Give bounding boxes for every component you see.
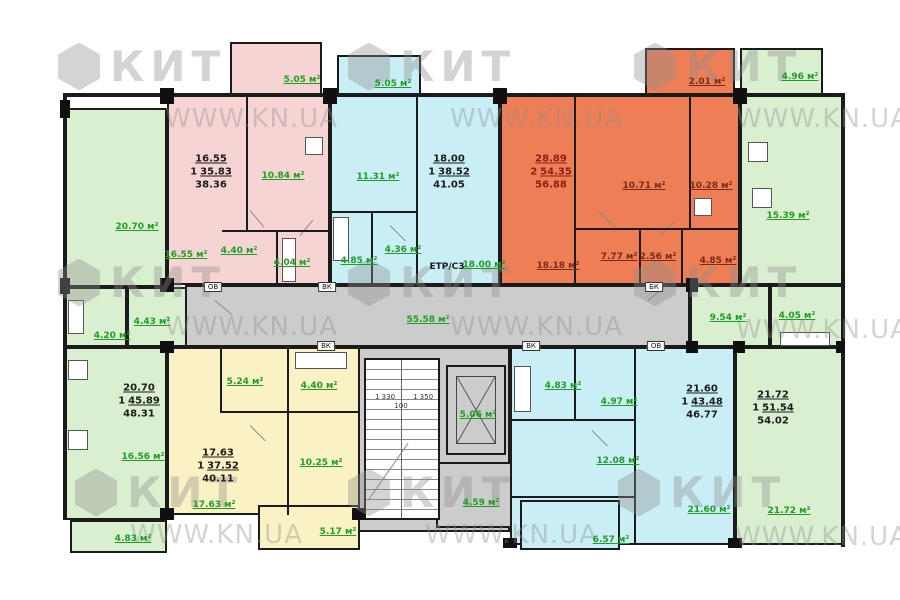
- bathtub-icon: [295, 352, 347, 369]
- wall-pier: [503, 538, 517, 548]
- label-cyan-top-balcony-area: 5.05 м²: [375, 79, 412, 89]
- label-orange-bedroom-area: 10.71 м²: [623, 181, 666, 191]
- label-pink-bath-area: 4.04 м²: [274, 258, 311, 268]
- label-pink-hall-area: 4.40 м²: [221, 246, 258, 256]
- partition: [287, 411, 289, 515]
- label-etr: ЕТР/С3: [429, 262, 464, 272]
- stair-dim-left: 1 330: [375, 393, 395, 401]
- label-right-hall-area: 9.54 м²: [710, 313, 747, 323]
- wall-pier: [160, 278, 174, 292]
- bathtub-icon: [333, 217, 349, 261]
- wall-top: [63, 93, 845, 97]
- apt-summary-pink: 16.55 135.83 38.36: [190, 153, 232, 192]
- wall-left: [63, 93, 67, 520]
- partition: [574, 228, 740, 230]
- room-cyan-top-balcony: [337, 55, 421, 95]
- stove-icon: [748, 142, 768, 162]
- label-cyan-bottom-balcony-area: 6.57 м²: [593, 535, 630, 545]
- label-right-kitchen-area: 15.39 м²: [767, 211, 810, 221]
- summary-living-total: 43.48: [691, 397, 723, 408]
- summary-mid: 254.35: [530, 166, 572, 179]
- partition: [220, 347, 222, 413]
- summary-living: 18.00: [428, 153, 470, 166]
- label-right-living-area: 21.72 м²: [768, 506, 811, 516]
- summary-mid: 151.54: [752, 402, 794, 415]
- summary-living: 20.70: [118, 382, 160, 395]
- summary-rooms: 1: [681, 397, 688, 408]
- summary-total: 40.11: [197, 473, 239, 486]
- partition: [510, 496, 636, 498]
- partition: [371, 211, 373, 285]
- room-pink-balcony: [230, 42, 322, 95]
- kit-logo-text: КИТ: [110, 42, 226, 91]
- label-elevator-area: 5.06 м²: [460, 410, 497, 420]
- label-cyan-bottom-living-area: 21.60 м²: [688, 505, 731, 515]
- wall-pier: [60, 278, 70, 294]
- bathtub-icon: [68, 300, 84, 334]
- room-utility: [436, 462, 520, 528]
- label-cyan-bottom-hall-area: 4.97 м²: [601, 397, 638, 407]
- partition: [510, 419, 636, 421]
- summary-living: 17.63: [197, 447, 239, 460]
- summary-rooms: 1: [428, 167, 435, 178]
- summary-living: 21.72: [752, 389, 794, 402]
- wall-pier: [323, 88, 337, 104]
- summary-total: 54.02: [752, 415, 794, 428]
- label-cyan-top-hall-area: 4.36 м²: [385, 245, 422, 255]
- summary-mid: 143.48: [681, 396, 723, 409]
- partition: [768, 285, 770, 347]
- summary-mid: 138.52: [428, 166, 470, 179]
- label-orange-hall-area: 7.77 м²: [601, 252, 638, 262]
- summary-total: 48.31: [118, 408, 160, 421]
- sink-icon: [752, 188, 772, 208]
- label-left-bath-area: 4.20 м²: [94, 331, 131, 341]
- wall-pier: [836, 341, 845, 353]
- label-utility-area: 4.59 м²: [463, 498, 500, 508]
- label-pink-balcony-area: 5.05 м²: [284, 75, 321, 85]
- label-orange-bath-area: 2.56 м²: [640, 252, 677, 262]
- kit-logo: КИТ: [58, 42, 226, 91]
- wall-pier: [733, 88, 747, 104]
- wall-pier: [493, 88, 507, 104]
- summary-living-total: 37.52: [207, 461, 239, 472]
- label-left-kitchen-area: 16.56 м²: [122, 452, 165, 462]
- sink-icon: [68, 430, 88, 450]
- label-cyan-bottom-kitchen-area: 12.08 м²: [597, 456, 640, 466]
- wall-pier: [728, 538, 742, 548]
- summary-living-total: 35.83: [200, 167, 232, 178]
- apt-summary-cyan-top: 18.00 138.52 41.05: [428, 153, 470, 192]
- label-left-hall-area: 4.43 м²: [134, 317, 171, 327]
- summary-living: 21.60: [681, 383, 723, 396]
- room-left-living: [65, 108, 167, 287]
- stair-dim-mid: 100: [394, 402, 407, 410]
- label-yellow-kitchen-area: 10.25 м²: [300, 458, 343, 468]
- wall-pier: [686, 341, 698, 353]
- bathtub-icon: [780, 332, 830, 346]
- apt-yellow-block: [167, 347, 360, 515]
- stove-icon: [68, 360, 88, 380]
- label-cyan-top-kitchen-area: 11.31 м²: [357, 172, 400, 182]
- summary-total: 56.88: [530, 179, 572, 192]
- summary-rooms: 1: [190, 167, 197, 178]
- summary-living-total: 54.35: [540, 167, 572, 178]
- label-pink-living-area: 16.55 м²: [165, 250, 208, 260]
- summary-living: 28.89: [530, 153, 572, 166]
- stair-dim-right: 1 350: [413, 393, 433, 401]
- label-orange-balcony-area: 2.01 м²: [689, 77, 726, 87]
- summary-living: 16.55: [190, 153, 232, 166]
- tag-vk: ВК: [318, 282, 336, 292]
- wall-pier: [160, 341, 174, 353]
- room-orange-balcony: [645, 48, 735, 95]
- summary-living-total: 38.52: [438, 167, 470, 178]
- label-right-balcony-area: 4.96 м²: [782, 72, 819, 82]
- summary-living-total: 45.89: [128, 396, 160, 407]
- wall-right: [841, 93, 845, 547]
- partition: [634, 347, 636, 545]
- staircase-divider: [401, 360, 402, 518]
- wall-pier: [60, 100, 70, 118]
- stove-icon: [305, 137, 323, 155]
- tag-bk: БК: [645, 282, 663, 292]
- wall-pier: [352, 508, 366, 520]
- summary-rooms: 1: [118, 396, 125, 407]
- label-cyan-top-living-area: 18.00 м²: [463, 260, 506, 270]
- tag-vk: ВК: [522, 341, 540, 351]
- label-orange-corridor-area: 4.85 м²: [700, 256, 737, 266]
- label-cyan-bottom-bath-area: 4.83 м²: [545, 381, 582, 391]
- summary-rooms: 1: [197, 461, 204, 472]
- label-orange-kitchen-area: 10.28 м²: [690, 181, 733, 191]
- tag-ov: ОВ: [647, 341, 665, 351]
- summary-mid: 145.89: [118, 395, 160, 408]
- partition: [246, 95, 248, 232]
- tag-ov: ОВ: [204, 282, 222, 292]
- label-left-living-area: 20.70 м²: [116, 222, 159, 232]
- kit-hexagon-icon: [58, 43, 100, 91]
- apt-summary-left-green: 20.70 145.89 48.31: [118, 382, 160, 421]
- apt-summary-orange: 28.89 254.35 56.88: [530, 153, 572, 192]
- apt-summary-cyan-bottom: 21.60 143.48 46.77: [681, 383, 723, 422]
- bathtub-icon: [514, 366, 531, 412]
- wall-pier: [160, 508, 174, 520]
- label-left-balcony-area: 4.83 м²: [115, 534, 152, 544]
- summary-living-total: 51.54: [762, 403, 794, 414]
- partition: [681, 228, 683, 285]
- label-cyan-top-bath-area: 4.85 м²: [341, 256, 378, 266]
- summary-total: 46.77: [681, 409, 723, 422]
- floor-plan: КИТ КИТ КИТ WWW.KN.UA WWW.KN.UA WWW.KN.U…: [0, 0, 900, 600]
- label-yellow-hall-area: 5.24 м²: [227, 377, 264, 387]
- apt-summary-right-green: 21.72 151.54 54.02: [752, 389, 794, 428]
- label-yellow-balcony-area: 5.17 м²: [320, 527, 357, 537]
- partition: [416, 95, 418, 285]
- summary-total: 38.36: [190, 179, 232, 192]
- label-pink-kitchen-area: 10.84 м²: [262, 171, 305, 181]
- label-yellow-living-area: 17.63 м²: [193, 500, 236, 510]
- stove-icon: [694, 198, 712, 216]
- label-right-bath-area: 4.05 м²: [779, 311, 816, 321]
- summary-mid: 135.83: [190, 166, 232, 179]
- wall-pier: [733, 341, 745, 353]
- partition: [574, 95, 576, 285]
- label-orange-living-area: 18.18 м²: [537, 261, 580, 271]
- summary-rooms: 2: [530, 167, 537, 178]
- partition: [287, 347, 289, 413]
- summary-mid: 137.52: [197, 460, 239, 473]
- wall-pier: [686, 278, 698, 292]
- summary-rooms: 1: [752, 403, 759, 414]
- partition: [689, 95, 691, 230]
- apt-summary-yellow: 17.63 137.52 40.11: [197, 447, 239, 486]
- label-yellow-bath-area: 4.40 м²: [301, 381, 338, 391]
- summary-total: 41.05: [428, 179, 470, 192]
- partition: [330, 211, 417, 213]
- partition: [220, 411, 360, 413]
- staircase: [364, 358, 440, 520]
- tag-vk: ВК: [317, 341, 335, 351]
- wall-pier: [160, 88, 174, 104]
- label-corridor-area: 55.58 м²: [407, 315, 450, 325]
